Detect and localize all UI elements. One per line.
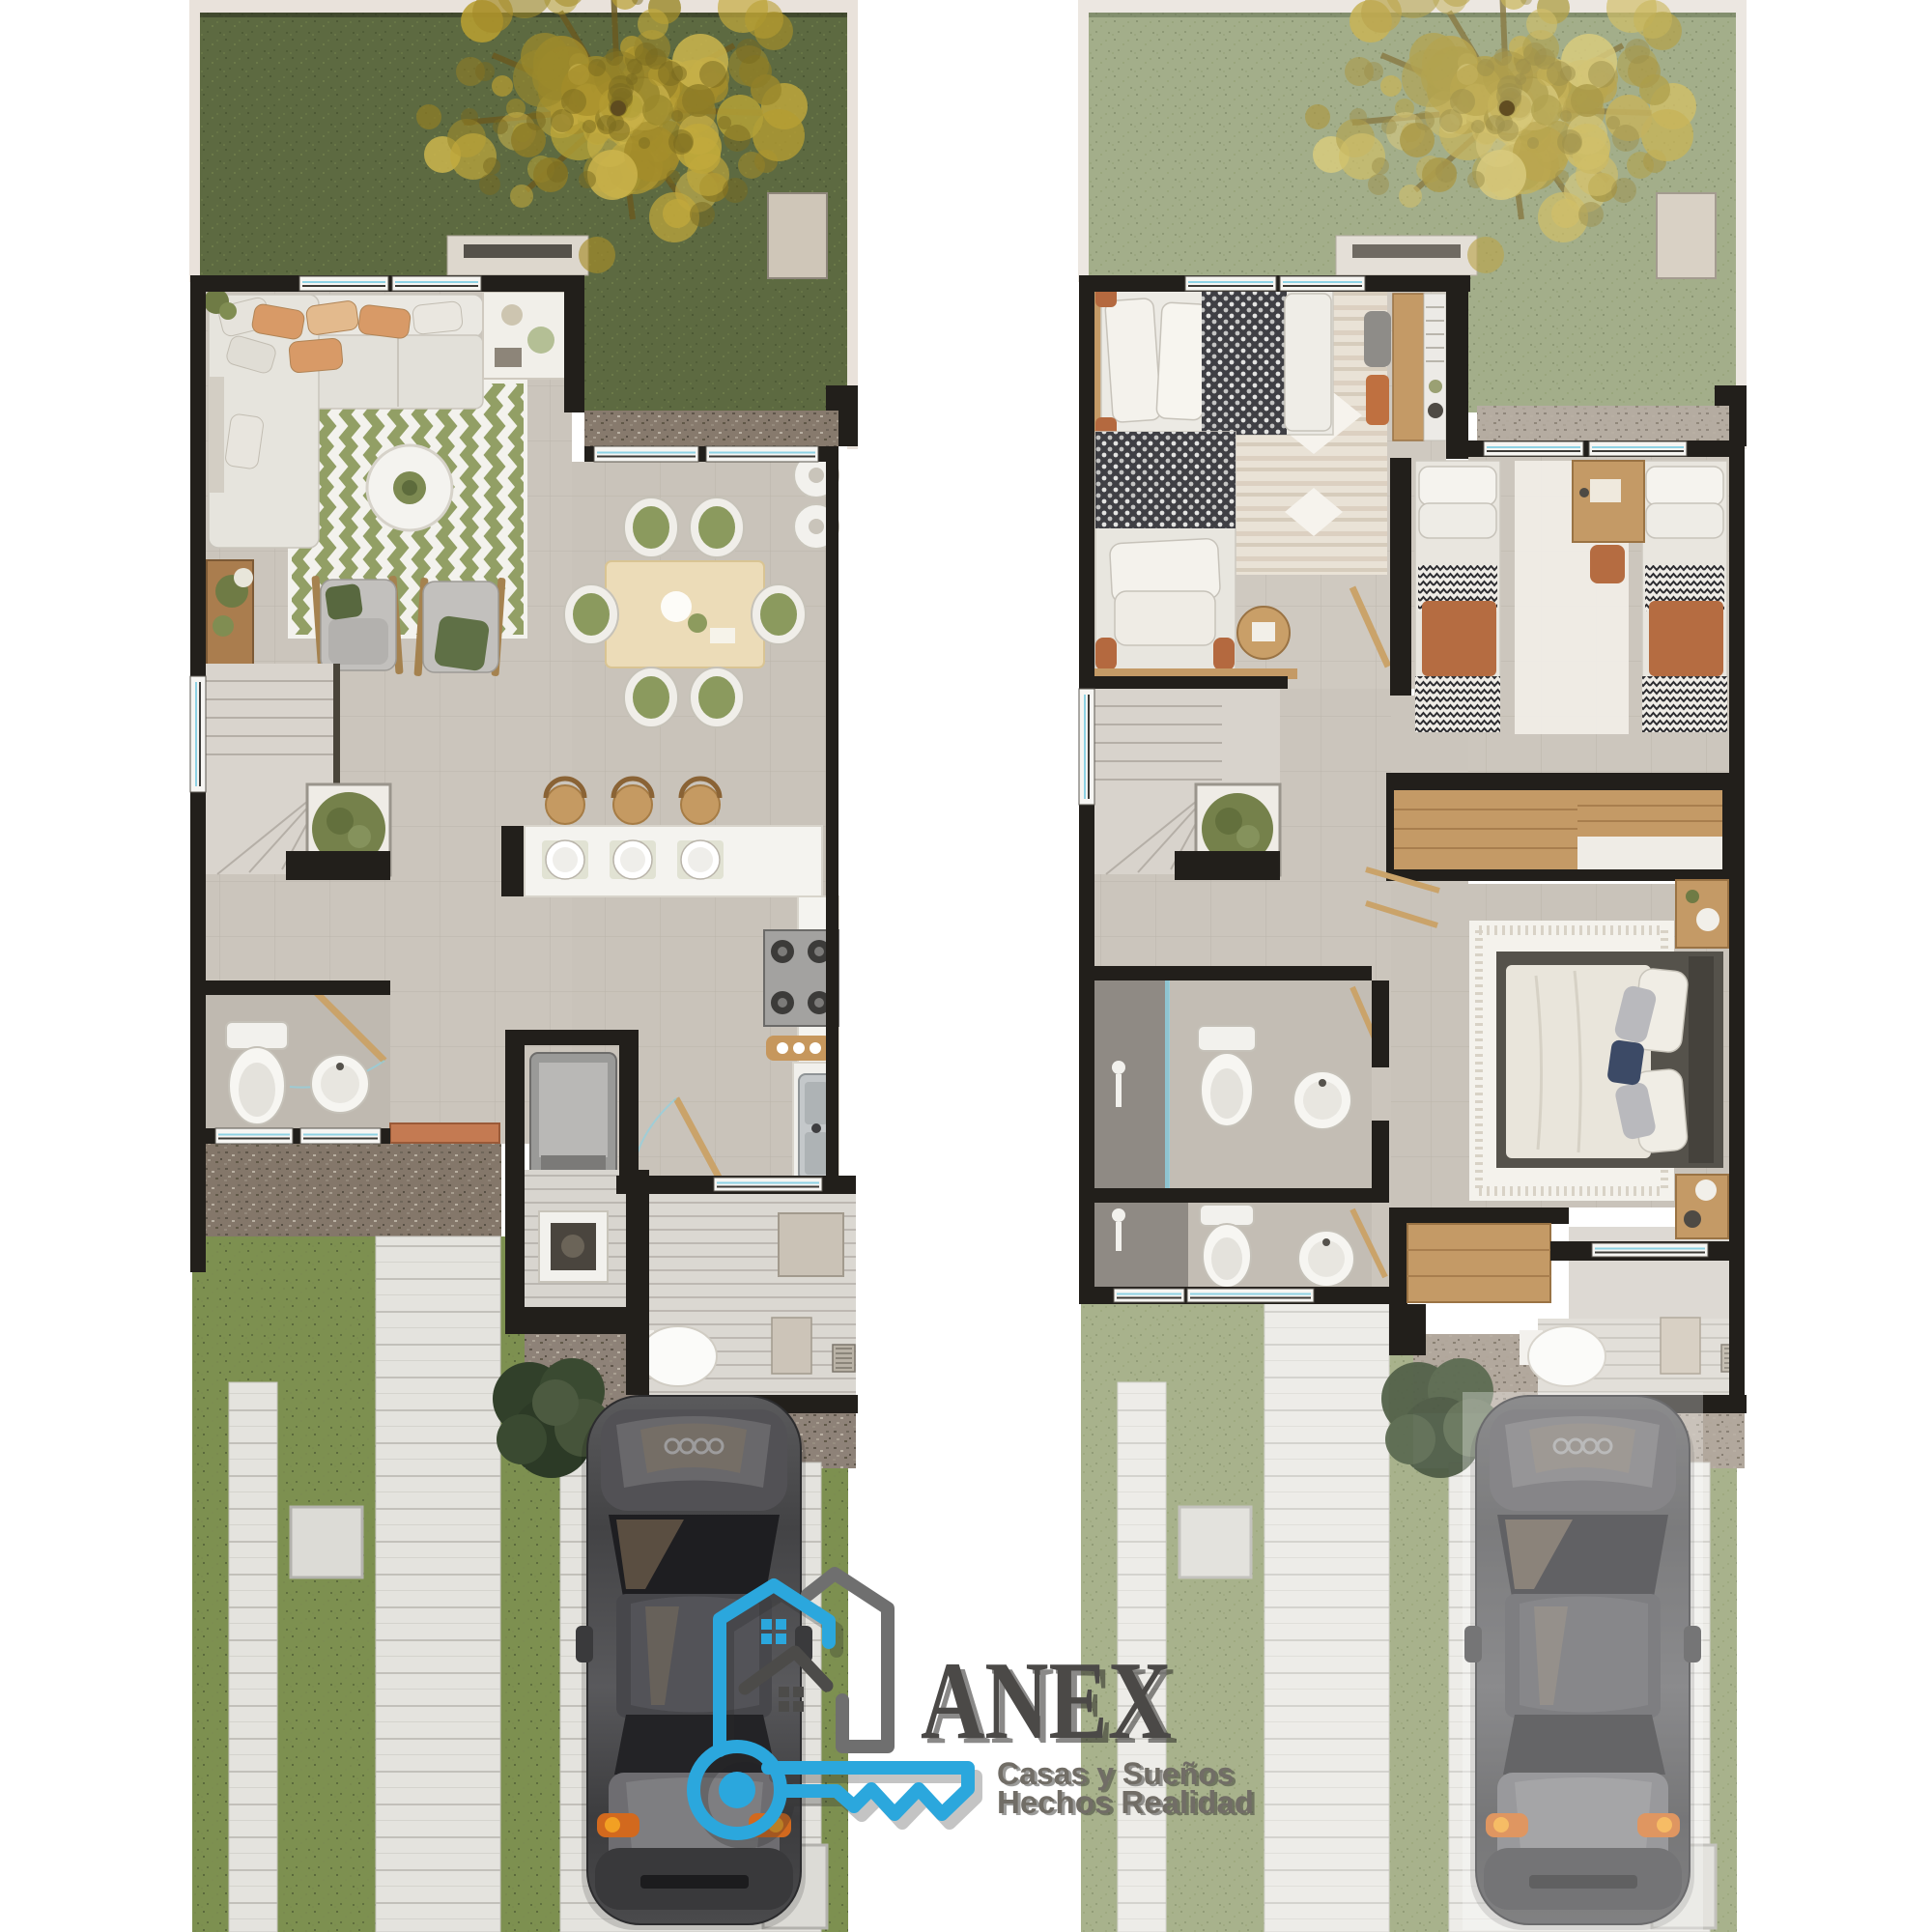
svg-text:Hechos Realidad: Hechos Realidad: [997, 1784, 1254, 1820]
svg-text:ANEX: ANEX: [921, 1639, 1172, 1763]
